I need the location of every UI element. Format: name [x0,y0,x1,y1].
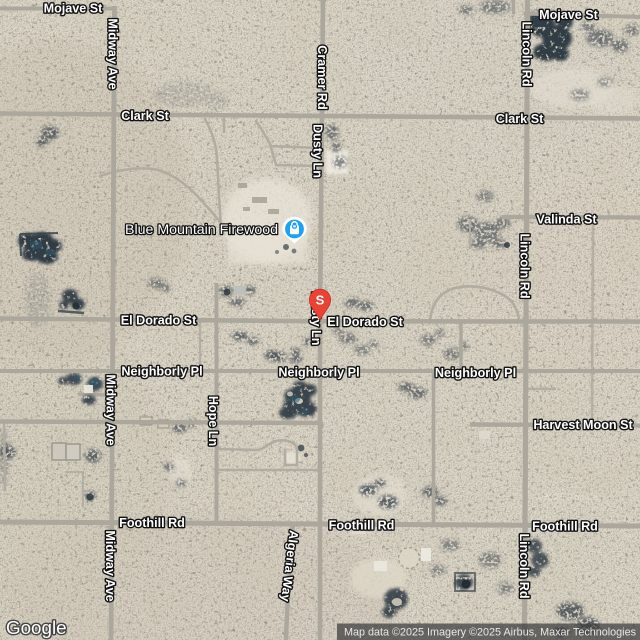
svg-text:Map data ©2025 Imagery ©2025 A: Map data ©2025 Imagery ©2025 Airbus, Max… [344,627,636,639]
svg-text:Google: Google [6,617,67,638]
svg-text:Hope Ln: Hope Ln [206,396,220,446]
svg-text:S: S [316,293,325,308]
svg-text:Harvest Moon St: Harvest Moon St [533,418,633,432]
svg-text:Lincoln Rd: Lincoln Rd [520,21,534,86]
svg-text:Lincoln Rd: Lincoln Rd [517,533,531,598]
svg-text:Lincoln Rd: Lincoln Rd [518,233,532,298]
svg-text:Clark St: Clark St [121,109,169,123]
svg-text:Neighborly Pl: Neighborly Pl [435,366,516,380]
svg-text:Cramer Rd: Cramer Rd [315,45,329,109]
svg-text:Foothill Rd: Foothill Rd [119,516,185,530]
svg-text:Foothill Rd: Foothill Rd [329,519,395,533]
svg-text:Midway Ave: Midway Ave [103,530,117,601]
svg-text:El Dorado St: El Dorado St [327,315,403,329]
svg-text:Valinda St: Valinda St [536,213,597,227]
svg-text:Midway Ave: Midway Ave [106,18,120,89]
svg-text:Clark St: Clark St [496,112,544,126]
svg-text:Dusty Ln: Dusty Ln [311,124,325,178]
svg-text:Blue Mountain Firewood: Blue Mountain Firewood [125,222,278,238]
svg-text:Mojave St: Mojave St [44,2,104,16]
svg-text:Neighborly Pl: Neighborly Pl [121,365,202,379]
svg-text:Neighborly Pl: Neighborly Pl [278,366,359,380]
svg-text:Midway Ave: Midway Ave [104,374,118,445]
svg-text:©2025 Google: ©2025 Google [536,492,597,503]
svg-text:El Dorado St: El Dorado St [121,314,197,328]
svg-text:Foothill Rd: Foothill Rd [532,520,598,534]
svg-text:Mojave St: Mojave St [539,8,599,22]
